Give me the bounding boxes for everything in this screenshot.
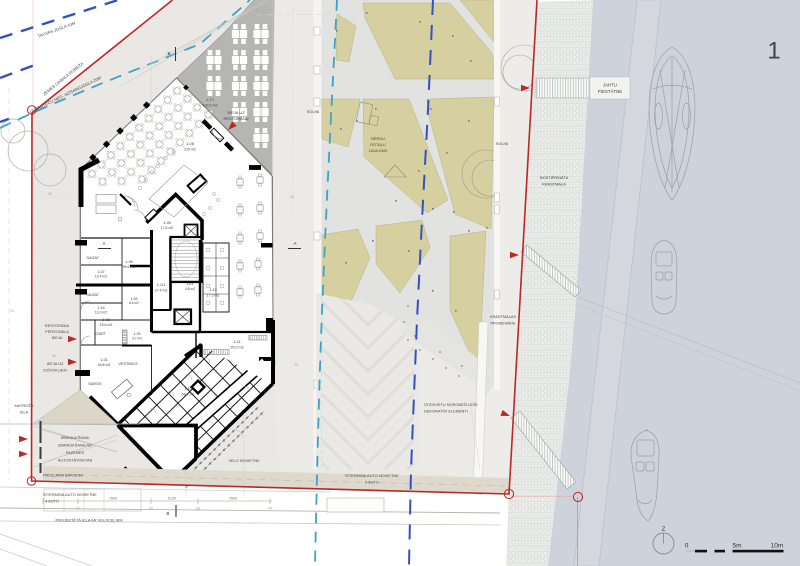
svg-text:Z: Z bbox=[662, 527, 666, 533]
svg-text:STAFF: STAFF bbox=[94, 332, 106, 336]
svg-text:X4: X4 bbox=[268, 507, 272, 511]
svg-text:Y3: Y3 bbox=[294, 363, 298, 367]
svg-text:V4: V4 bbox=[290, 195, 294, 199]
svg-text:1-08: 1-08 bbox=[186, 141, 195, 146]
svg-text:4.8 m2: 4.8 m2 bbox=[185, 287, 195, 291]
svg-text:IEEJA: IEEJA bbox=[52, 335, 63, 340]
svg-text:DEKORATĪVI ELEMENTI: DEKORATĪVI ELEMENTI bbox=[424, 409, 468, 414]
svg-text:109.2 m2: 109.2 m2 bbox=[203, 104, 218, 108]
svg-text:1-11: 1-11 bbox=[233, 339, 241, 344]
svg-text:RESTORĀNU: RESTORĀNU bbox=[223, 116, 248, 121]
svg-text:A: A bbox=[102, 241, 105, 246]
svg-text:PERSONĀLA: PERSONĀLA bbox=[45, 329, 69, 334]
svg-text:VELO NOVIETNE: VELO NOVIETNE bbox=[228, 458, 260, 463]
svg-text:1-05: 1-05 bbox=[163, 221, 171, 225]
svg-text:KRASTMALA: KRASTMALA bbox=[542, 182, 566, 187]
svg-text:PAZEMES: PAZEMES bbox=[66, 450, 85, 455]
svg-text:PIESTĀTNE: PIESTĀTNE bbox=[598, 89, 622, 94]
svg-text:9 AUTO: 9 AUTO bbox=[365, 480, 379, 485]
svg-text:1-G1: 1-G1 bbox=[157, 283, 165, 287]
svg-text:LAUKUMS: LAUKUMS bbox=[369, 148, 388, 153]
svg-text:X2: X2 bbox=[149, 507, 153, 511]
svg-text:1-02: 1-02 bbox=[102, 318, 110, 322]
svg-text:15.6 m2: 15.6 m2 bbox=[100, 323, 113, 327]
svg-text:STĀVVIETU NOROBEŽOJOŠI: STĀVVIETU NOROBEŽOJOŠI bbox=[424, 402, 478, 407]
svg-text:3.7 m2: 3.7 m2 bbox=[132, 337, 142, 341]
svg-text:MATROŽU: MATROŽU bbox=[15, 403, 34, 408]
svg-text:17.6 m2: 17.6 m2 bbox=[161, 226, 174, 230]
svg-text:IZBRAUKŠANA NO: IZBRAUKŠANA NO bbox=[58, 443, 92, 448]
svg-text:DZĪVOKĻIEM: DZĪVOKĻIEM bbox=[43, 368, 67, 373]
svg-text:1: 1 bbox=[767, 38, 780, 65]
svg-text:10m: 10m bbox=[771, 543, 784, 550]
svg-text:NOSTIPRINĀTA: NOSTIPRINĀTA bbox=[540, 175, 569, 180]
svg-text:215 m2: 215 m2 bbox=[184, 148, 196, 152]
svg-text:0: 0 bbox=[685, 543, 689, 550]
svg-text:7600: 7600 bbox=[229, 497, 237, 501]
svg-text:V2: V2 bbox=[48, 192, 52, 196]
svg-text:1-04: 1-04 bbox=[97, 306, 104, 310]
svg-text:IELA: IELA bbox=[20, 410, 29, 415]
svg-text:59.6 m2: 59.6 m2 bbox=[123, 265, 136, 269]
svg-text:1-03: 1-03 bbox=[133, 332, 140, 336]
svg-text:A: A bbox=[293, 241, 296, 246]
svg-text:ĪSTERMIŅA AUTO NOVIETNE: ĪSTERMIŅA AUTO NOVIETNE bbox=[345, 473, 399, 478]
svg-text:SOLIŅI: SOLIŅI bbox=[307, 109, 320, 114]
svg-text:68.7 m2: 68.7 m2 bbox=[182, 393, 195, 397]
svg-text:Y1: Y1 bbox=[10, 309, 14, 313]
svg-text:JAHTU: JAHTU bbox=[603, 83, 617, 88]
svg-text:10.2 m2: 10.2 m2 bbox=[95, 311, 107, 315]
svg-text:X1: X1 bbox=[76, 507, 80, 511]
svg-text:SOLIŅI: SOLIŅI bbox=[496, 141, 509, 146]
svg-text:SAGAT.: SAGAT. bbox=[86, 256, 99, 260]
svg-text:1-10: 1-10 bbox=[209, 288, 217, 292]
svg-text:1-07: 1-07 bbox=[97, 270, 104, 274]
svg-text:IEEJA UZ: IEEJA UZ bbox=[227, 110, 245, 115]
svg-text:BĒRNU: BĒRNU bbox=[371, 136, 385, 141]
svg-text:1-01: 1-01 bbox=[100, 358, 108, 362]
svg-text:5130: 5130 bbox=[168, 497, 176, 501]
svg-text:7600: 7600 bbox=[109, 497, 117, 501]
svg-text:RESTORĀNA: RESTORĀNA bbox=[45, 323, 70, 328]
svg-text:VESTIBILS: VESTIBILS bbox=[118, 362, 138, 366]
svg-text:B: B bbox=[166, 511, 169, 516]
svg-text:AUTOSTĀVVIETAS: AUTOSTĀVVIETAS bbox=[58, 458, 93, 463]
svg-text:ROTAĻU: ROTAĻU bbox=[370, 142, 386, 147]
svg-text:25.0 m2: 25.0 m2 bbox=[230, 346, 243, 350]
svg-text:B: B bbox=[167, 51, 170, 56]
svg-text:X3: X3 bbox=[196, 507, 200, 511]
svg-text:PROMENĀDE: PROMENĀDE bbox=[490, 321, 515, 326]
svg-text:PACEĻAMA BARJERA: PACEĻAMA BARJERA bbox=[43, 473, 83, 478]
svg-text:27.4 m2: 27.4 m2 bbox=[155, 289, 168, 293]
svg-text:1-12: 1-12 bbox=[184, 387, 192, 391]
svg-text:5m: 5m bbox=[732, 543, 741, 550]
svg-text:1-K1: 1-K1 bbox=[186, 282, 194, 286]
svg-text:IEEJA UZ: IEEJA UZ bbox=[47, 361, 64, 366]
svg-text:6.4 m2: 6.4 m2 bbox=[129, 301, 139, 305]
svg-text:1-06: 1-06 bbox=[125, 260, 133, 264]
svg-text:46.8 m2: 46.8 m2 bbox=[98, 363, 111, 367]
svg-text:IEBRAUKŠANA/: IEBRAUKŠANA/ bbox=[61, 435, 91, 440]
svg-text:17.3 m2: 17.3 m2 bbox=[207, 294, 220, 298]
svg-text:SARGS: SARGS bbox=[88, 382, 102, 386]
svg-text:1-T1: 1-T1 bbox=[206, 97, 215, 102]
svg-text:ĪSTERMIŅA AUTO NOVIETNE: ĪSTERMIŅA AUTO NOVIETNE bbox=[43, 492, 97, 497]
svg-text:PROJEKTĒTĀ IELA AR VELOCEĻIEM: PROJEKTĒTĀ IELA AR VELOCEĻIEM bbox=[55, 518, 122, 523]
svg-text:10.4 m2: 10.4 m2 bbox=[95, 275, 107, 279]
svg-text:4 AUTO: 4 AUTO bbox=[45, 499, 59, 504]
svg-text:KRASTMALAS: KRASTMALAS bbox=[490, 314, 517, 319]
svg-text:SAGAT.: SAGAT. bbox=[86, 293, 99, 297]
svg-text:V1: V1 bbox=[52, 354, 56, 358]
